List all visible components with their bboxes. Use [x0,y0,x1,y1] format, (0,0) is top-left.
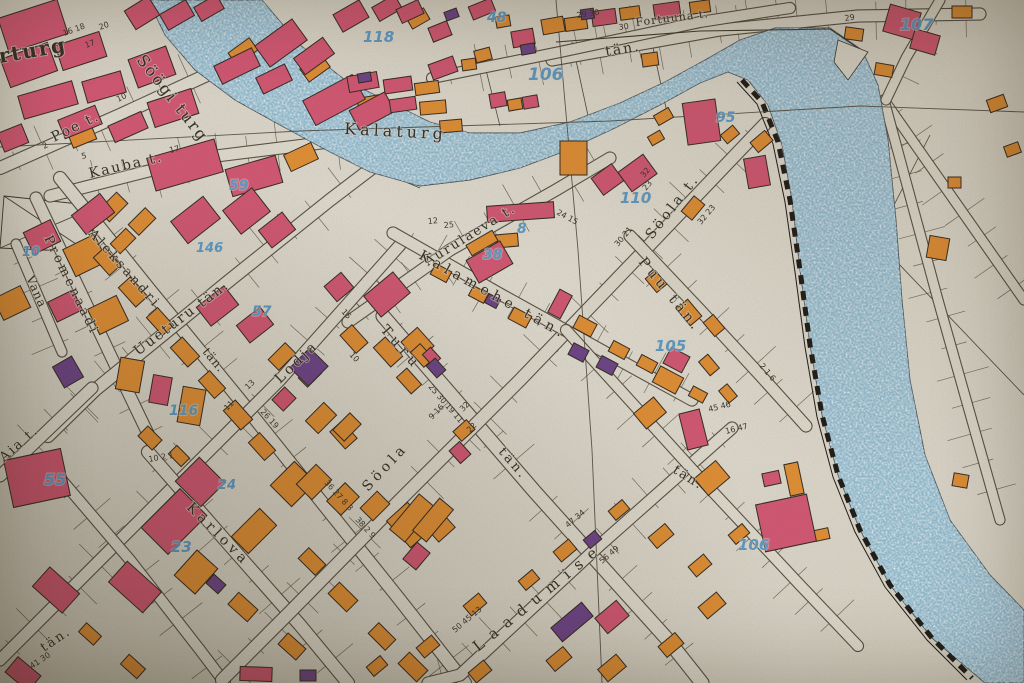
paper-grain-overlay [0,0,1024,683]
map-photo: rturgSöögi turgPoe t.Kauba t.Kalaturgtän… [0,0,1024,683]
map-canvas: rturgSöögi turgPoe t.Kauba t.Kalaturgtän… [0,0,1024,683]
